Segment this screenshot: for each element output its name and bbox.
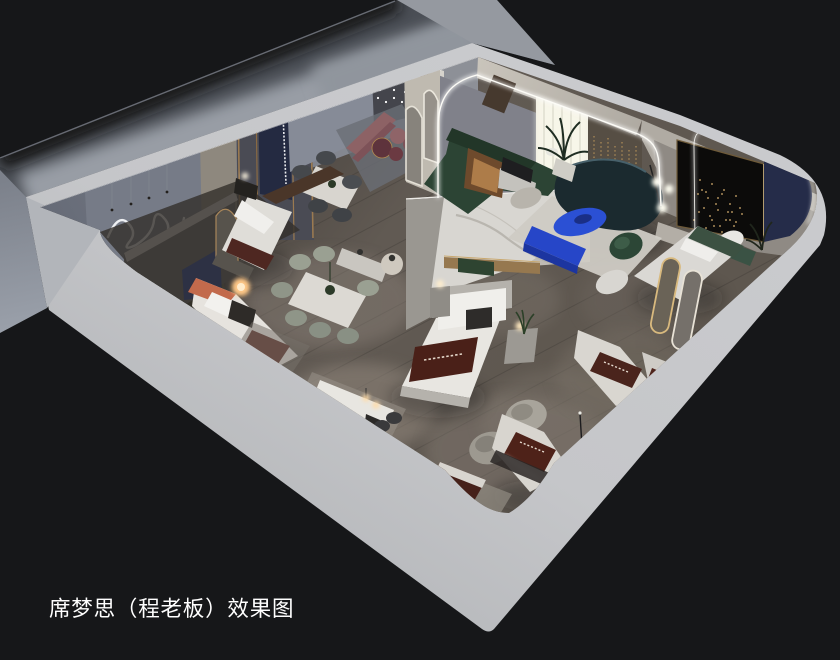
svg-text:席梦思（程老板）效果图: 席梦思（程老板）效果图 xyxy=(49,597,294,621)
